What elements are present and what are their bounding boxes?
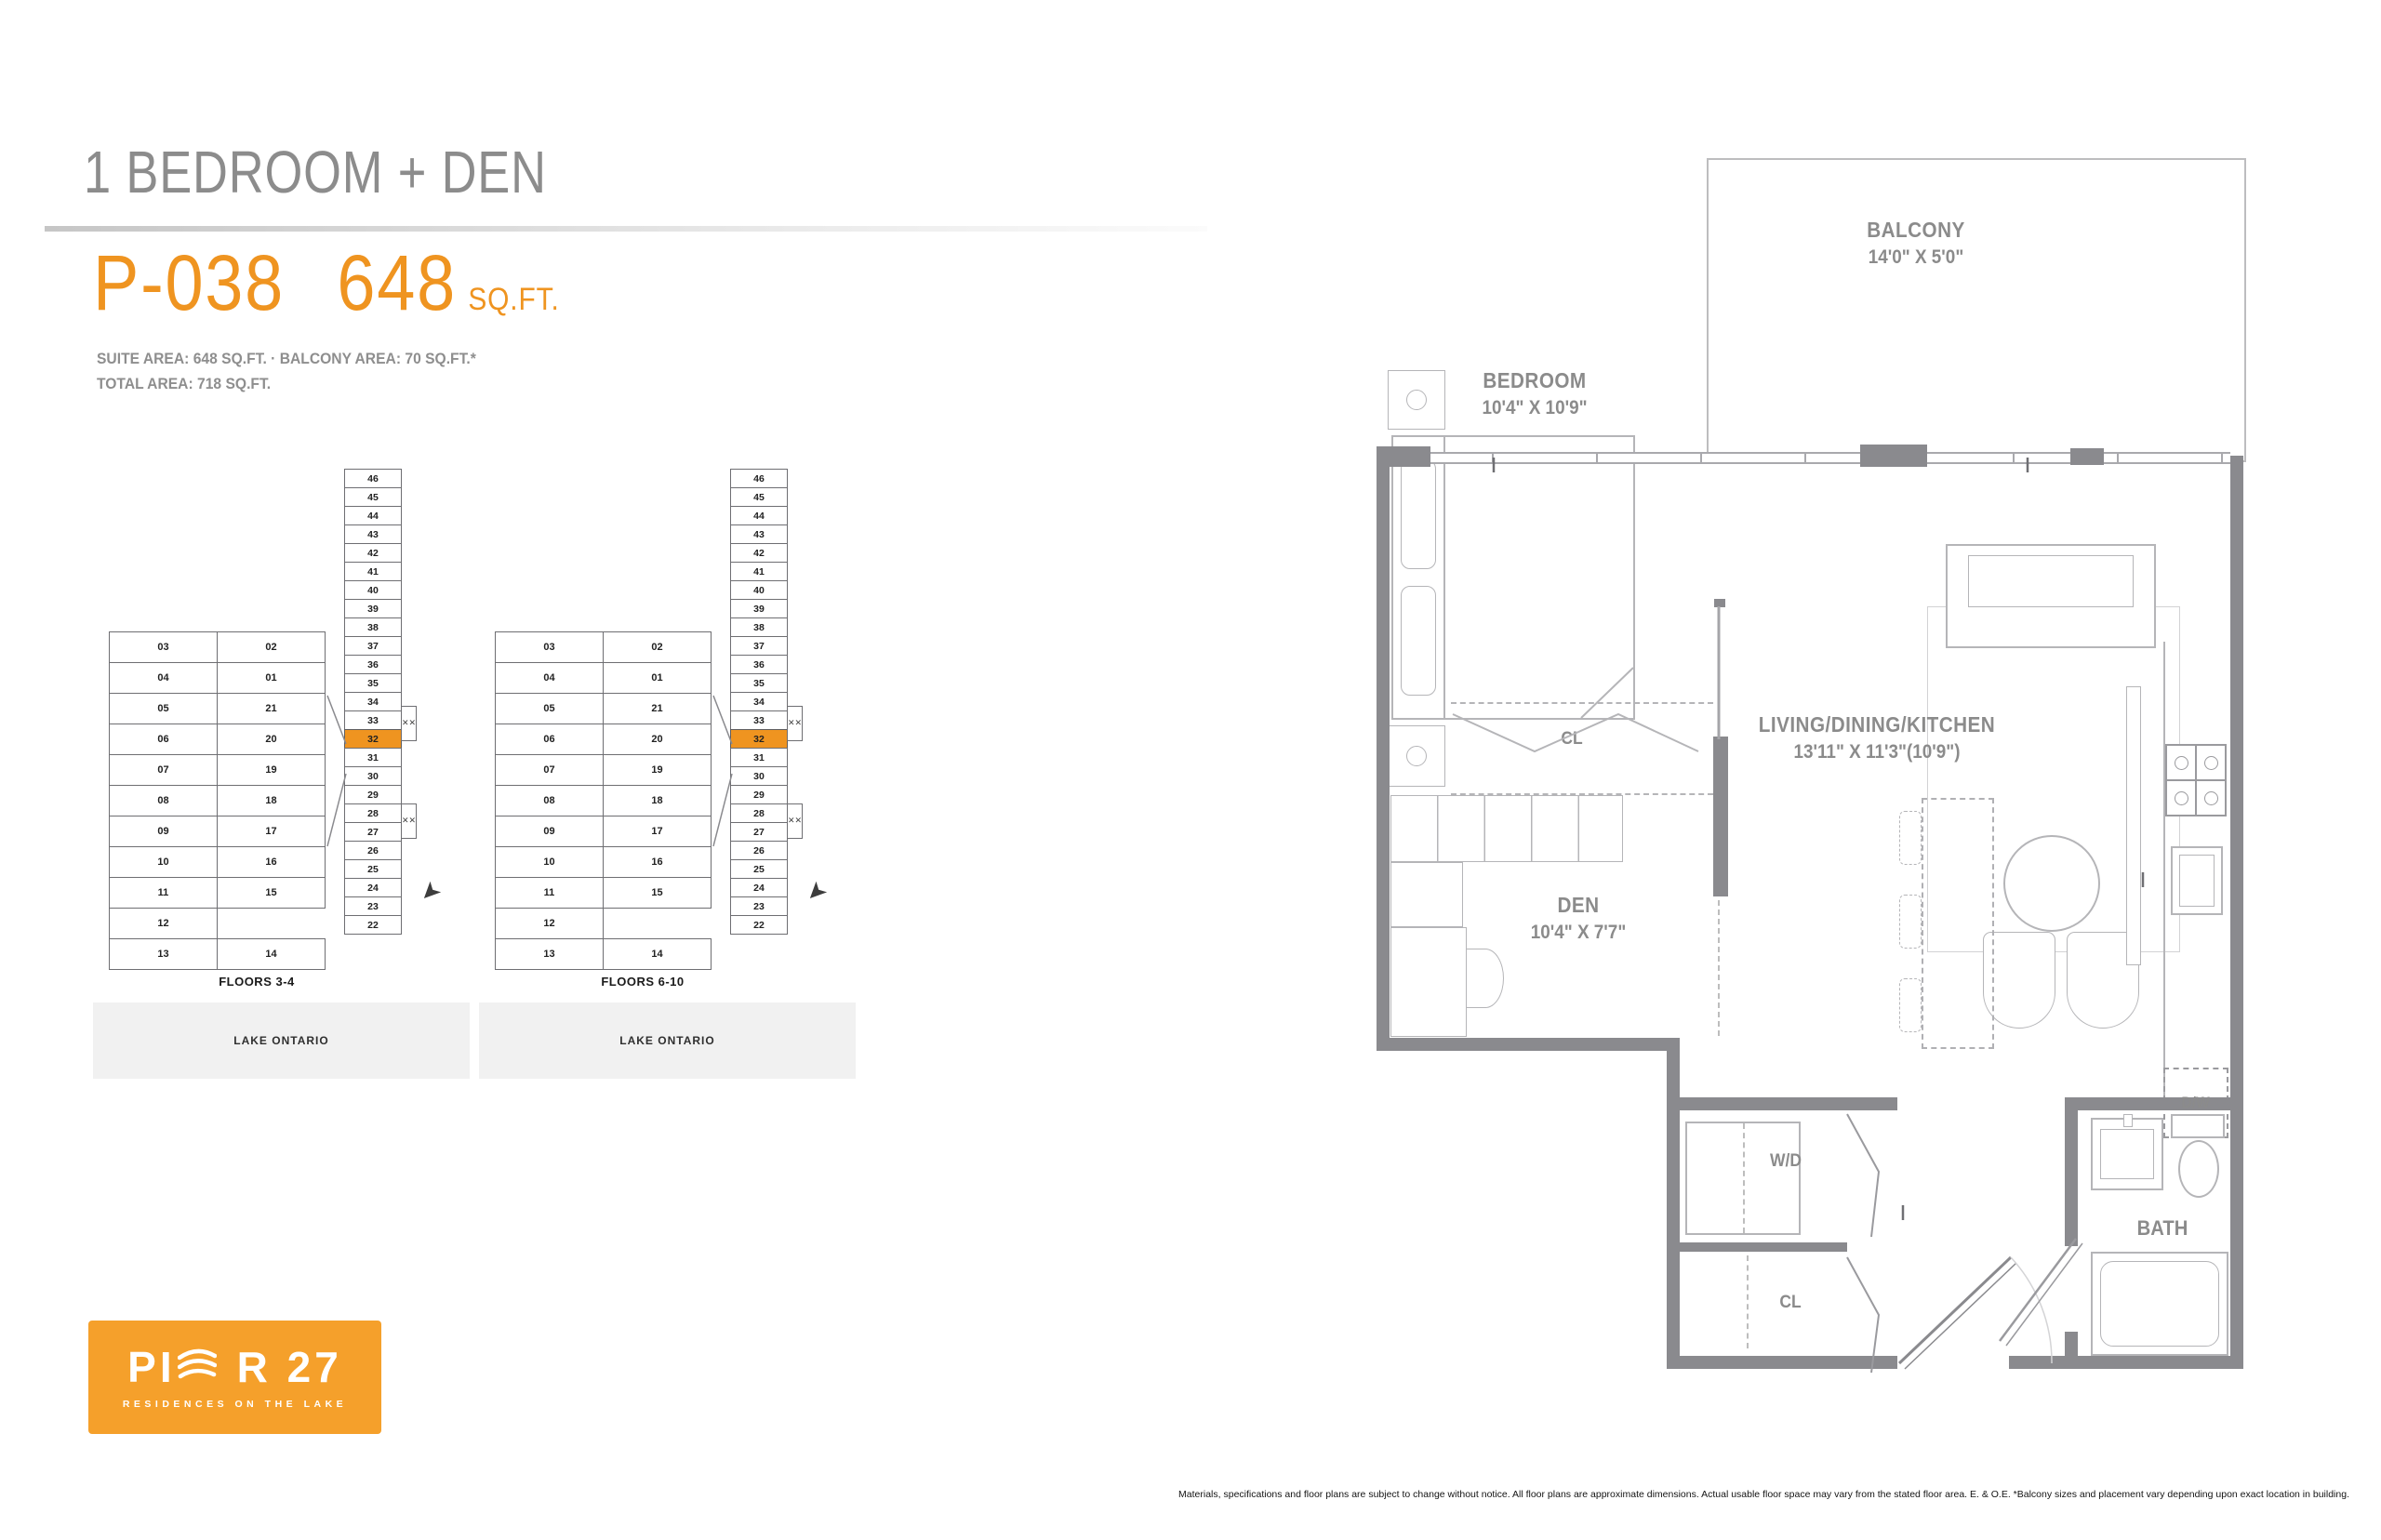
tv-console xyxy=(2126,686,2141,965)
key-plan-stack-unit-30: 30 xyxy=(344,766,402,786)
pillow xyxy=(1401,459,1436,569)
bath-sink xyxy=(2091,1118,2163,1190)
floorplan-sheet: { "header": { "title": "1 BEDROOM + DEN"… xyxy=(0,0,2381,1540)
sofa xyxy=(1946,544,2156,648)
bedroom-closet-label: CL xyxy=(1521,729,1623,750)
key-plan-stack-unit-46: 46 xyxy=(344,469,402,488)
key-plan-unit-07: 07 xyxy=(109,754,218,786)
pillow xyxy=(1401,586,1436,696)
toilet-bowl xyxy=(2178,1140,2219,1198)
elevator-core-icon: ✕✕ xyxy=(401,706,417,741)
kitchen-island xyxy=(1922,798,1994,1049)
key-plan-unit-01: 01 xyxy=(603,662,712,694)
den-label: DEN 10'4" X 7'7" xyxy=(1478,891,1679,946)
key-plan-unit-19: 19 xyxy=(603,754,712,786)
key-plan-stack-unit-36: 36 xyxy=(730,655,788,674)
bathtub xyxy=(2091,1252,2228,1356)
bar-stool xyxy=(1899,811,1922,865)
lamp-icon xyxy=(1406,390,1427,410)
key-plan-stack-unit-30: 30 xyxy=(730,766,788,786)
pier27-wordmark: PI R 27 xyxy=(127,1345,342,1389)
unit-summary: P-038 648 SQ.FT. xyxy=(93,238,560,328)
key-plan-stack-unit-24: 24 xyxy=(344,878,402,897)
key-plan-stack-unit-38: 38 xyxy=(730,617,788,637)
wall-laundry-top xyxy=(1680,1097,1897,1110)
logo-text-r27: R 27 xyxy=(237,1346,342,1388)
key-plan-stack-unit-22: 22 xyxy=(730,915,788,935)
key-plan-stack-unit-40: 40 xyxy=(730,580,788,600)
den-opening-dashed xyxy=(1718,900,1720,1036)
key-plan-stack-unit-28: 28 xyxy=(344,803,402,823)
key-plan-stack-unit-26: 26 xyxy=(730,841,788,860)
unit-code: P-038 xyxy=(93,238,285,328)
pier27-logo: PI R 27 RESIDENCES ON THE LAKE xyxy=(88,1321,381,1434)
key-plan-unit-03: 03 xyxy=(109,631,218,663)
key-plan-unit-18: 18 xyxy=(603,785,712,816)
key-plan-stack-unit-37: 37 xyxy=(344,636,402,656)
key-plan-unit-08: 08 xyxy=(495,785,604,816)
wall-left xyxy=(1377,456,1390,1051)
key-plan-unit-03: 03 xyxy=(495,631,604,663)
key-plan-highlighted-unit: 32 xyxy=(344,729,402,749)
key-plan-stack-unit-35: 35 xyxy=(730,673,788,693)
den-shelving xyxy=(1390,795,1623,862)
key-plan-stack-unit-29: 29 xyxy=(344,785,402,804)
key-plan-unit-16: 16 xyxy=(603,846,712,878)
window-wall xyxy=(1390,452,2230,464)
washer-dryer xyxy=(1685,1122,1801,1235)
key-plan-unit-19: 19 xyxy=(217,754,326,786)
logo-tagline: RESIDENCES ON THE LAKE xyxy=(123,1399,347,1410)
bar-stool xyxy=(1899,978,1922,1032)
bed-headboard xyxy=(1443,437,1445,718)
key-plan-stack-unit-43: 43 xyxy=(730,524,788,544)
key-plan-unit-21: 21 xyxy=(603,693,712,724)
key-plan-stack-unit-34: 34 xyxy=(730,692,788,711)
key-plan-stack-unit-46: 46 xyxy=(730,469,788,488)
wave-e-icon xyxy=(178,1347,217,1389)
floor-plan: BALCONY 14'0" X 5'0" BEDROOM 10'4" X 10'… xyxy=(1358,139,2279,1390)
key-plan-unit-16: 16 xyxy=(217,846,326,878)
bed xyxy=(1391,435,1635,720)
key-plan-unit-08: 08 xyxy=(109,785,218,816)
key-plan-unit-11: 11 xyxy=(495,877,604,909)
key-plan-stack-unit-31: 31 xyxy=(344,748,402,767)
den-cabinet xyxy=(1390,862,1463,927)
key-plan-unit-05: 05 xyxy=(495,693,604,724)
key-plan-unit-02: 02 xyxy=(603,631,712,663)
sofa-back-cushion xyxy=(1968,555,2134,607)
area-details: SUITE AREA: 648 SQ.FT. · BALCONY AREA: 7… xyxy=(97,346,476,396)
key-plan-stack-unit-22: 22 xyxy=(344,915,402,935)
balcony-label: BALCONY 14'0" X 5'0" xyxy=(1807,216,2025,271)
key-plan-unit-21: 21 xyxy=(217,693,326,724)
page-title: 1 BEDROOM + DEN xyxy=(84,138,547,206)
lake-ontario-label: LAKE ONTARIO xyxy=(233,1034,328,1047)
key-plan-unit-20: 20 xyxy=(603,724,712,755)
cooktop xyxy=(2165,744,2227,816)
key-plan-unit-14: 14 xyxy=(603,938,712,970)
elevator-core-icon: ✕✕ xyxy=(787,803,803,839)
lake-ontario-band: LAKE ONTARIO xyxy=(93,1002,470,1079)
key-plan-unit-06: 06 xyxy=(495,724,604,755)
lamp-icon xyxy=(1406,746,1427,766)
key-plan-unit-20: 20 xyxy=(217,724,326,755)
key-plan-stack-unit-23: 23 xyxy=(344,896,402,916)
key-plan-unit-06: 06 xyxy=(109,724,218,755)
key-plan-floors-label: FLOORS 6-10 xyxy=(496,975,790,989)
sliding-door-cap xyxy=(1714,599,1725,607)
wall-laundry-closet-divider xyxy=(1680,1242,1847,1252)
key-plan-stack-unit-25: 25 xyxy=(730,859,788,879)
key-plan-unit-04: 04 xyxy=(109,662,218,694)
key-plan-stack: 4645444342414039383736353433323130292827… xyxy=(730,470,788,935)
title-divider xyxy=(45,226,1207,232)
lake-ontario-band: LAKE ONTARIO xyxy=(479,1002,856,1079)
key-plan-stack-unit-33: 33 xyxy=(730,710,788,730)
toilet-tank xyxy=(2171,1114,2225,1138)
key-plan-floors-3-4: FLOORS 3-4 03020401052106200719081809171… xyxy=(110,470,404,1004)
key-plan-unit-13: 13 xyxy=(495,938,604,970)
living-label: LIVING/DINING/KITCHEN 13'11" X 11'3"(10'… xyxy=(1751,710,2002,765)
kitchen-sink xyxy=(2171,846,2223,915)
key-plan-wing: 0302040105210620071908180917101611151213… xyxy=(496,632,712,970)
key-plan-unit-09: 09 xyxy=(495,816,604,847)
key-plan-unit-18: 18 xyxy=(217,785,326,816)
key-plan-stack-unit-41: 41 xyxy=(730,562,788,581)
key-plan-stack: 4645444342414039383736353433323130292827… xyxy=(344,470,402,935)
key-plan-unit-05: 05 xyxy=(109,693,218,724)
key-plan-stack-unit-35: 35 xyxy=(344,673,402,693)
lake-ontario-label: LAKE ONTARIO xyxy=(619,1034,714,1047)
washer-dryer-divider xyxy=(1743,1123,1745,1233)
key-plan-stack-unit-44: 44 xyxy=(730,506,788,525)
key-plan-unit-12: 12 xyxy=(109,908,218,939)
wall-right xyxy=(2230,456,2243,1369)
key-plan-unit-09: 09 xyxy=(109,816,218,847)
key-plan-floors-6-10: FLOORS 6-10 0302040105210620071908180917… xyxy=(496,470,790,1004)
wall-bedroom-partition xyxy=(1713,737,1728,896)
key-plan-unit-07: 07 xyxy=(495,754,604,786)
bathtub-basin xyxy=(2100,1261,2219,1347)
key-plan-stack-unit-27: 27 xyxy=(344,822,402,842)
logo-text-pi: PI xyxy=(127,1346,175,1388)
den-chair xyxy=(1467,949,1504,1008)
key-plan-stack-unit-33: 33 xyxy=(344,710,402,730)
suite-area-line: SUITE AREA: 648 SQ.FT. · BALCONY AREA: 7… xyxy=(97,346,476,371)
north-arrow-icon: ➤ xyxy=(799,875,833,909)
key-plan-unit-12: 12 xyxy=(495,908,604,939)
key-plan-stack-unit-42: 42 xyxy=(344,543,402,563)
key-plan-unit-15: 15 xyxy=(603,877,712,909)
key-plan-highlighted-unit: 32 xyxy=(730,729,788,749)
key-plan-unit-01: 01 xyxy=(217,662,326,694)
bar-stool xyxy=(1899,895,1922,949)
wall-top-right xyxy=(2070,448,2104,465)
key-plan-unit-10: 10 xyxy=(495,846,604,878)
key-plan-stack-unit-29: 29 xyxy=(730,785,788,804)
key-plan-stack-unit-23: 23 xyxy=(730,896,788,916)
key-plan-stack-unit-25: 25 xyxy=(344,859,402,879)
bedroom-label: BEDROOM 10'4" X 10'9" xyxy=(1426,366,1643,421)
elevator-core-icon: ✕✕ xyxy=(787,706,803,741)
wall-top-middle xyxy=(1860,445,1927,467)
bath-faucet xyxy=(2123,1114,2133,1127)
key-plan-stack-unit-44: 44 xyxy=(344,506,402,525)
key-plan-unit-02: 02 xyxy=(217,631,326,663)
key-plan-stack-unit-31: 31 xyxy=(730,748,788,767)
disclaimer-text: Materials, specifications and floor plan… xyxy=(1178,1489,2349,1500)
sink-basin xyxy=(2179,855,2215,907)
dining-table xyxy=(2003,835,2100,932)
key-plan-unit-empty xyxy=(217,908,326,939)
key-plan-stack-unit-38: 38 xyxy=(344,617,402,637)
wall-bath-left-upper xyxy=(2065,1097,2078,1246)
total-area-line: TOTAL AREA: 718 SQ.FT. xyxy=(97,371,476,396)
elevator-core-icon: ✕✕ xyxy=(401,803,417,839)
key-plan-unit-14: 14 xyxy=(217,938,326,970)
wall-bottom-right xyxy=(2009,1356,2243,1369)
key-plan-stack-unit-26: 26 xyxy=(344,841,402,860)
key-plan-stack-unit-39: 39 xyxy=(730,599,788,618)
key-plan-stack-unit-43: 43 xyxy=(344,524,402,544)
nightstand xyxy=(1388,725,1445,787)
den-desk xyxy=(1390,927,1467,1037)
laundry-label: W/D xyxy=(1735,1151,1837,1172)
wall-bath-top xyxy=(2065,1097,2243,1110)
key-plan-stack-unit-45: 45 xyxy=(344,487,402,507)
key-plan-unit-17: 17 xyxy=(603,816,712,847)
bath-sink-basin xyxy=(2100,1129,2154,1179)
balcony-outline xyxy=(1707,158,2246,462)
bath-label: BATH xyxy=(2098,1216,2227,1241)
key-plan-unit-11: 11 xyxy=(109,877,218,909)
key-plan-unit-15: 15 xyxy=(217,877,326,909)
wall-bath-left-lower xyxy=(2065,1332,2078,1369)
key-plan-floors-label: FLOORS 3-4 xyxy=(110,975,404,989)
key-plan-stack-unit-27: 27 xyxy=(730,822,788,842)
key-plan-stack-unit-45: 45 xyxy=(730,487,788,507)
key-plan-unit-10: 10 xyxy=(109,846,218,878)
wall-entry-left xyxy=(1667,1038,1680,1369)
key-plan-stack-unit-42: 42 xyxy=(730,543,788,563)
wall-bottom-left xyxy=(1667,1356,1897,1369)
key-plan-unit-empty xyxy=(603,908,712,939)
key-plan-stack-unit-41: 41 xyxy=(344,562,402,581)
key-plan-stack-unit-28: 28 xyxy=(730,803,788,823)
unit-area-unit: SQ.FT. xyxy=(468,282,559,318)
key-plan-wing: 0302040105210620071908180917101611151213… xyxy=(110,632,326,970)
key-plan-stack-unit-36: 36 xyxy=(344,655,402,674)
key-plan-stack-unit-34: 34 xyxy=(344,692,402,711)
north-arrow-icon: ➤ xyxy=(413,875,447,909)
key-plan-unit-13: 13 xyxy=(109,938,218,970)
key-plan-stack-unit-40: 40 xyxy=(344,580,402,600)
entry-closet-label: CL xyxy=(1739,1293,1842,1313)
key-plan-unit-17: 17 xyxy=(217,816,326,847)
key-plan-stack-unit-24: 24 xyxy=(730,878,788,897)
key-plan-stack-unit-37: 37 xyxy=(730,636,788,656)
key-plan-unit-04: 04 xyxy=(495,662,604,694)
unit-area-value: 648 xyxy=(337,238,457,328)
key-plan-stack-unit-39: 39 xyxy=(344,599,402,618)
wall-den-bottom xyxy=(1377,1038,1680,1051)
